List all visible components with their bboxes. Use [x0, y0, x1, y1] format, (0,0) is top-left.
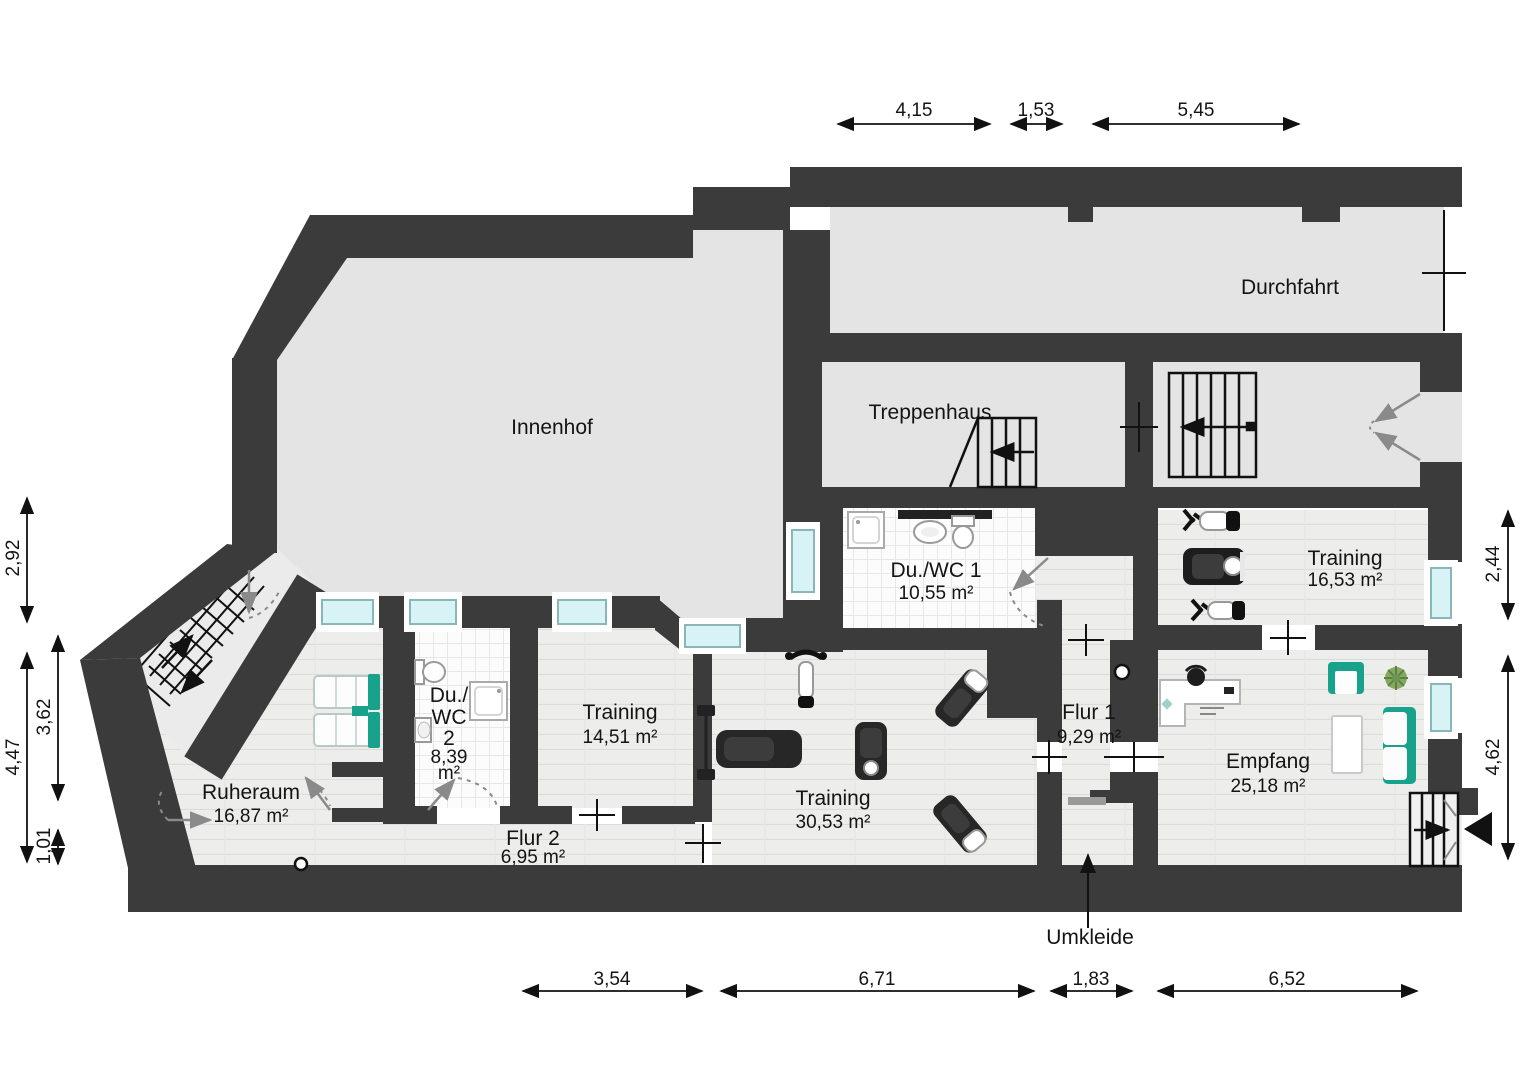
- room-area-empfang: 25,18 m²: [1231, 777, 1306, 797]
- dim-top-3: 5,45: [1178, 101, 1215, 121]
- dim-left-1: 2,92: [4, 540, 24, 577]
- room-label-training-left: Training: [582, 702, 657, 724]
- room-label-empfang: Empfang: [1226, 751, 1310, 773]
- dim-bottom-3: 1,83: [1073, 970, 1110, 990]
- room-label-du-wc-2-l1: Du./: [430, 685, 469, 707]
- dim-bottom-2: 6,71: [859, 970, 896, 990]
- room-label-du-wc-1: Du./WC 1: [890, 560, 981, 582]
- window: [316, 592, 379, 632]
- armchair: [1328, 662, 1364, 694]
- room-area-du-wc-1: 10,55 m²: [899, 584, 974, 604]
- room-area-training-center: 30,53 m²: [796, 813, 871, 833]
- entrance-stairs-icon: [1410, 793, 1458, 866]
- window: [786, 522, 820, 600]
- window: [1424, 676, 1458, 739]
- room-label-training-right: Training: [1307, 548, 1382, 570]
- window: [1424, 560, 1458, 626]
- room-label-ruheraum: Ruheraum: [202, 782, 300, 804]
- room-label-innenhof: Innenhof: [511, 417, 593, 439]
- room-label-training-center: Training: [795, 788, 870, 810]
- toilet-icon: [952, 516, 974, 526]
- dim-top-1: 4,15: [896, 101, 933, 121]
- dim-right-1: 2,44: [1484, 546, 1504, 583]
- room-label-flur-1: Flur 1: [1062, 702, 1116, 724]
- office-chair-icon: [1187, 668, 1205, 686]
- room-label-treppenhaus: Treppenhaus: [869, 402, 992, 424]
- treadmill-icon: [1183, 548, 1245, 585]
- floor-plan: Innenhof Durchfahrt Treppenhaus Du./WC 1…: [0, 0, 1528, 1080]
- dim-left-4: 1,01: [35, 828, 55, 865]
- dim-top-2: 1,53: [1018, 101, 1055, 121]
- umkleide-bench: [1068, 797, 1106, 805]
- room-area-training-left: 14,51 m²: [583, 728, 658, 748]
- window: [552, 592, 612, 632]
- coffee-table: [1332, 716, 1362, 773]
- dim-bottom-4: 6,52: [1269, 970, 1306, 990]
- window: [679, 618, 746, 654]
- room-area-training-right: 16,53 m²: [1308, 571, 1383, 591]
- dim-bottom-1: 3,54: [594, 970, 631, 990]
- room-label-du-wc-2-l2: WC: [432, 707, 467, 729]
- dim-right-2: 4,62: [1484, 739, 1504, 776]
- room-label-durchfahrt: Durchfahrt: [1241, 277, 1339, 299]
- symbol-circle: [295, 858, 307, 870]
- sofa: [1383, 707, 1416, 784]
- entrance-arrow-icon: [1464, 812, 1492, 846]
- room-area-du-wc-2-unit: m²: [438, 764, 460, 784]
- shelf-icon: [898, 510, 992, 519]
- room-area-flur-2: 6,95 m²: [501, 848, 565, 868]
- symbol-circle: [1115, 665, 1129, 679]
- gym-machine-icon: [855, 722, 887, 780]
- room-area-ruheraum: 16,87 m²: [214, 807, 289, 827]
- dim-left-2: 4,47: [4, 739, 24, 776]
- room-label-umkleide: Umkleide: [1046, 927, 1134, 949]
- window: [404, 592, 462, 632]
- dim-left-3: 3,62: [35, 699, 55, 736]
- floor-plan-drawing: [0, 0, 1528, 1080]
- room-area-flur-1: 9,29 m²: [1057, 728, 1121, 748]
